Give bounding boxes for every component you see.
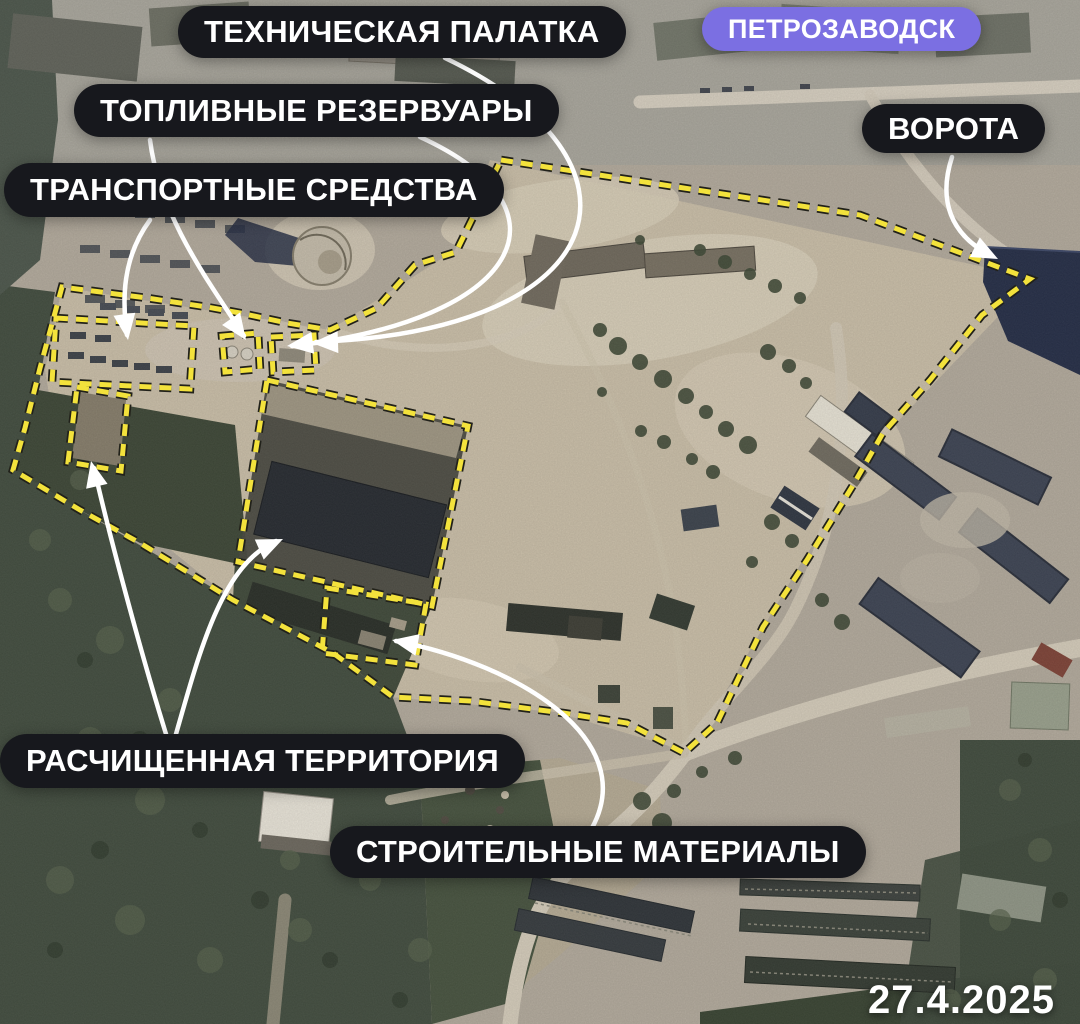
label-gate: ВОРОТА: [862, 104, 1045, 153]
label-technical-tent: ТЕХНИЧЕСКАЯ ПАЛАТКА: [178, 6, 626, 58]
annotated-satellite-image: ТЕХНИЧЕСКАЯ ПАЛАТКА ТОПЛИВНЫЕ РЕЗЕРВУАРЫ…: [0, 0, 1080, 1024]
label-cleared-territory: РАСЧИЩЕННАЯ ТЕРРИТОРИЯ: [0, 734, 525, 788]
label-vehicles: ТРАНСПОРТНЫЕ СРЕДСТВА: [4, 163, 504, 217]
label-fuel-reservoirs: ТОПЛИВНЫЕ РЕЗЕРВУАРЫ: [74, 84, 559, 137]
city-badge: ПЕТРОЗАВОДСК: [702, 7, 981, 51]
label-construction-materials: СТРОИТЕЛЬНЫЕ МАТЕРИАЛЫ: [330, 826, 866, 878]
date-stamp: 27.4.2025: [868, 978, 1055, 1023]
